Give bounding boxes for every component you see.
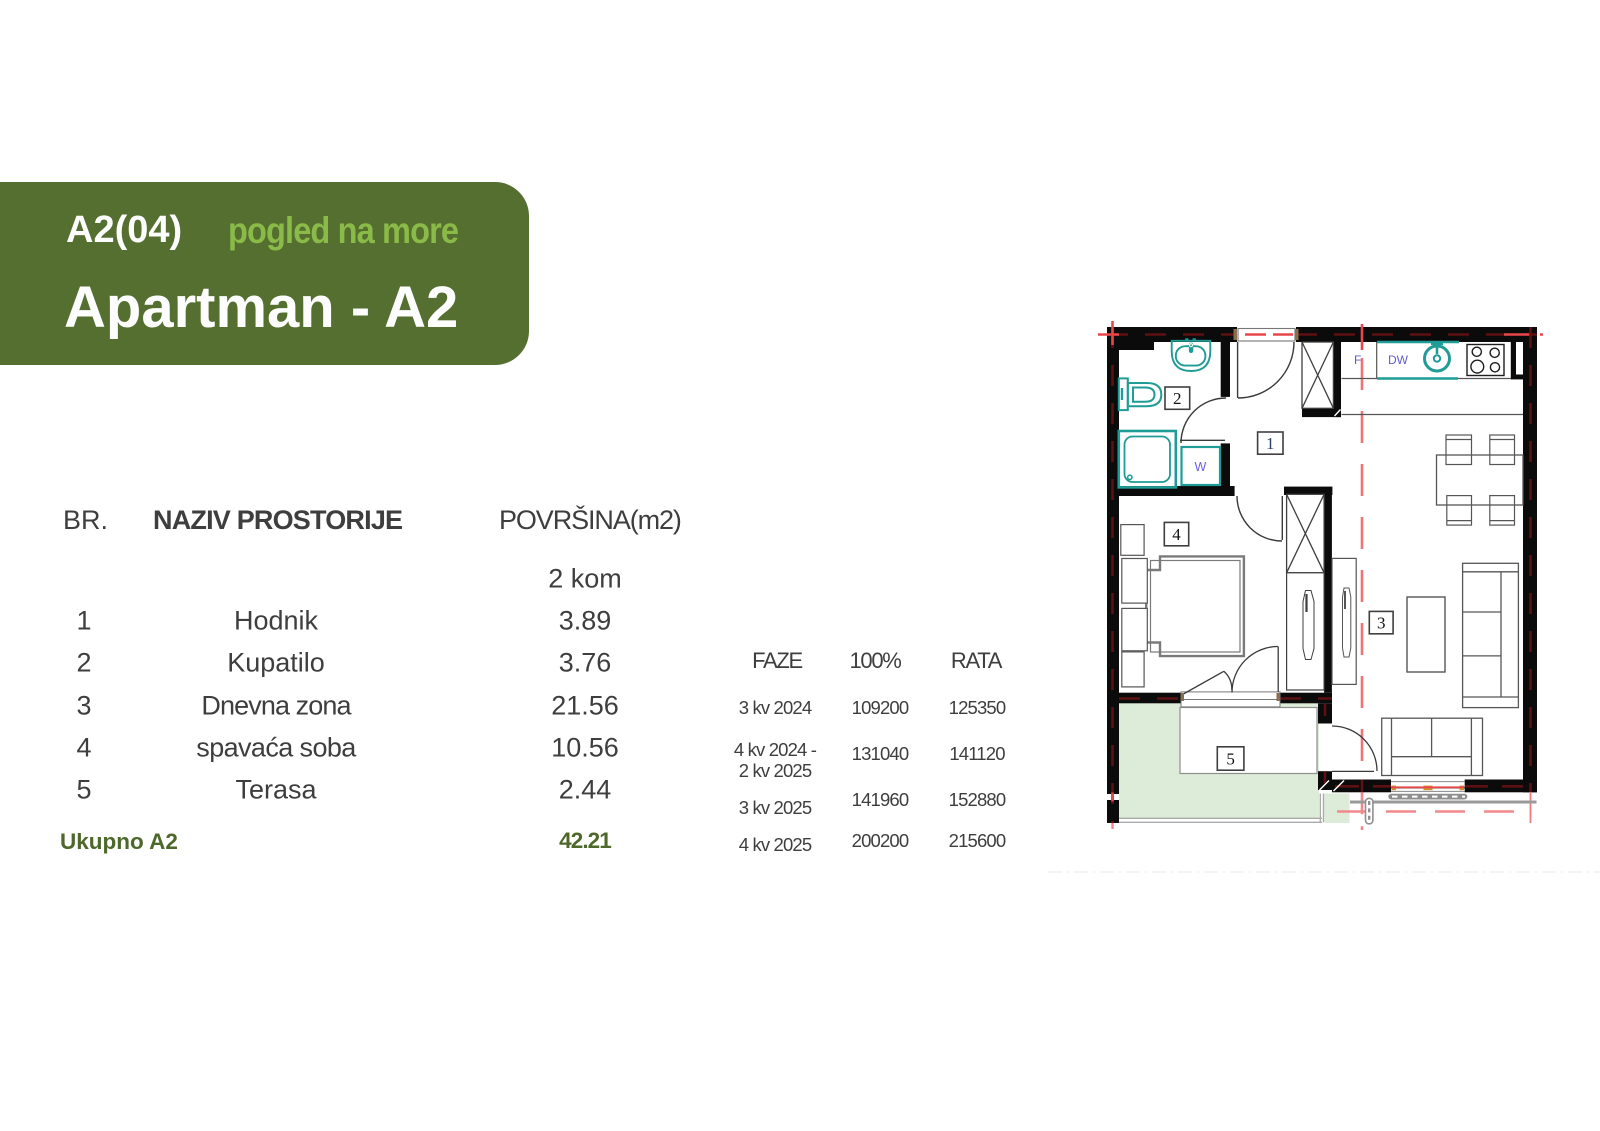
svg-text:F: F xyxy=(1354,353,1361,367)
svg-text:DW: DW xyxy=(1388,353,1409,367)
svg-text:2: 2 xyxy=(1173,389,1182,408)
svg-text:5: 5 xyxy=(1226,750,1235,769)
svg-text:4: 4 xyxy=(1172,525,1181,544)
svg-text:1: 1 xyxy=(1266,434,1275,453)
svg-text:3: 3 xyxy=(1377,614,1386,633)
svg-text:W: W xyxy=(1195,460,1207,474)
